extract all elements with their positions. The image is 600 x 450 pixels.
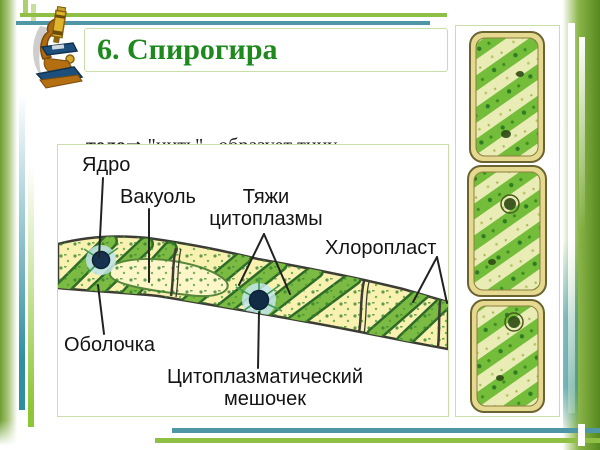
right-white-stripe-2 xyxy=(579,37,585,230)
pointer-chloroplast-right xyxy=(437,257,447,303)
bottom-green-rule xyxy=(155,438,600,443)
left-gradient-bar xyxy=(0,0,18,450)
label-sac-line2: мешочек xyxy=(157,388,373,410)
right-white-stripe-1 xyxy=(568,23,575,413)
spirogyra-diagram: Ядро Вакуоль Тяжи цитоплазмы Хлоропласт … xyxy=(57,144,449,417)
microscope-icon xyxy=(28,6,86,90)
pointer-sac xyxy=(258,312,259,368)
slide-title: 6. Спирогира xyxy=(97,29,278,70)
spirogyra-filament-image xyxy=(456,26,559,416)
label-sac-line1: Цитоплазматический xyxy=(157,366,373,388)
left-green-vline xyxy=(28,165,34,427)
label-nucleus: Ядро xyxy=(82,154,130,176)
slide: 6. Спирогира тело⇒ "нить" , образует тин… xyxy=(0,0,600,450)
bottom-teal-rule xyxy=(172,428,600,433)
spirogyra-photo xyxy=(455,25,560,417)
title-box: 6. Спирогира xyxy=(84,28,448,72)
label-strands-line2: цитоплазмы xyxy=(206,208,326,230)
label-membrane: Оболочка xyxy=(64,334,155,356)
label-cytoplasm-strands: Тяжи цитоплазмы xyxy=(206,186,326,230)
left-teal-vline xyxy=(19,95,25,410)
label-chloroplast: Хлоропласт xyxy=(325,237,436,259)
label-vacuole: Вакуоль xyxy=(120,186,196,208)
label-strands-line1: Тяжи xyxy=(206,186,326,208)
label-cytoplasmic-sac: Цитоплазматический мешочек xyxy=(157,366,373,410)
left-bar-fade xyxy=(0,420,20,450)
bottom-rule-gap xyxy=(578,424,585,446)
